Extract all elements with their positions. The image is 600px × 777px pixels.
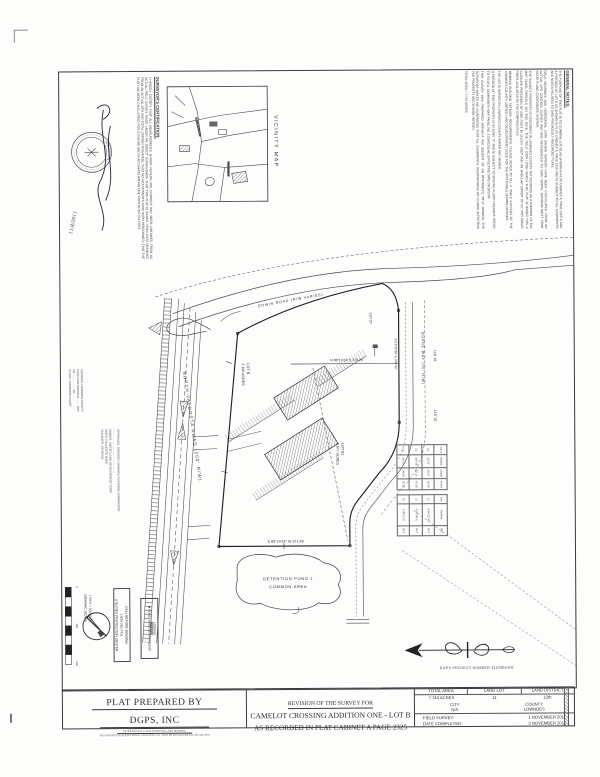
pond-label-line2: COMMON AREA [269, 584, 307, 589]
scan-corner-mark [14, 30, 28, 43]
north-valdosta-road-label: NORTH VALDOSTA ROAD (200' R/W) [182, 371, 203, 482]
legend-box: LEGEND ■ CONC. MONUMENT FOUND [140, 598, 158, 659]
curve-cell: 81.93' [410, 479, 423, 490]
line-cell: N 43°48' E [410, 504, 423, 526]
curve-cell: C2 [409, 445, 422, 455]
title-block: PLAT PREPARED BY DGPS, INC PROFESSIONAL … [62, 686, 575, 729]
city-value: N/A [415, 707, 495, 713]
prepared-by-cell: PLAT PREPARED BY DGPS, INC PROFESSIONAL … [63, 689, 247, 728]
lot-right-label: LOT B1 3.877 ACRES [335, 443, 344, 466]
north-valdosta-road [143, 298, 227, 646]
call-box-line1: CALL BEFORE DIGGING [123, 589, 128, 661]
vicinity-map-label: VICINITY MAP [272, 115, 278, 168]
line-cell: L1 [422, 495, 435, 504]
curve-cell: 82.11' [409, 467, 422, 479]
svg-text:200: 200 [75, 661, 79, 666]
burne-way-label: BURNE WAY (50' R/W) [421, 332, 425, 385]
general-note: THE LOT IS SERVED BY LOWNDES COUNTY WATE… [497, 71, 502, 229]
curve-th: Curve [434, 445, 447, 455]
call-box-line3: UTILITIES PROTECTION CENTER [113, 589, 118, 661]
svg-text:0: 0 [75, 586, 79, 588]
certification-body: I HEREBY CERTIFY THAT ALL MEASUREMENTS S… [135, 77, 153, 259]
general-note: THIS SURVEY WAS PREPARED WITHOUT THE BEN… [471, 71, 485, 229]
curve-cell: 25.00' [422, 455, 435, 467]
lot26-label: LOT 26 [433, 350, 437, 361]
land-lot-header: LAND LOT [468, 688, 521, 694]
certification-heading: SURVEYOR'S CERTIFICATION: [154, 77, 161, 259]
line-cell: 35.2' [397, 526, 410, 536]
title-block-edge-strip [564, 687, 569, 725]
lot-left-label: LOT B 3.180 ACRES [241, 363, 250, 386]
general-note: TOTAL AREA = 7.743 ACRES [464, 71, 469, 229]
svg-text:LOT B: LOT B [246, 363, 250, 374]
info-table-cell: TOTAL AREA LAND LOT LAND DISTRICT 7.743 … [415, 687, 574, 726]
bearing-mid: N 88°14'24" E 370.26' [330, 358, 363, 362]
svg-text:3.877 ACRES: 3.877 ACRES [335, 443, 339, 466]
line-cell: N 46°12' W [422, 504, 435, 526]
curve-cell: 35.36' [422, 479, 435, 490]
owner-approval-note: APPROVED: GREATER LOWNDES PLANNING COMMI… [94, 429, 121, 531]
general-notes: GENERAL NOTES: THE PURPOSE OF THIS PLAT … [400, 70, 571, 229]
prepared-by-title: PLAT PREPARED BY [92, 698, 216, 711]
curve-cell: 38.94' [397, 468, 410, 480]
curve-table: Curve Radius Length Chord C1 25.00' 39.2… [396, 444, 447, 490]
line-cell: L3 [397, 495, 410, 504]
line-cell: 35.2' [422, 526, 435, 536]
bearing-south: S 88°14'24" W 371.46' [268, 539, 305, 543]
line-cell: S 46°12' E [397, 504, 410, 526]
vicinity-map: N. VALDOSTA RD WINDEMERE [167, 86, 268, 202]
line-cell: L2 [410, 495, 423, 504]
curve-cell: 25.00' [397, 455, 410, 467]
curve-th: Chord [435, 479, 448, 490]
curve-cell: 35.12' [397, 479, 410, 490]
lot27-label: LOT 27 [369, 313, 373, 324]
legend-heading: LEGEND [151, 599, 156, 658]
seal-date: 11/4/2011 [68, 210, 79, 234]
total-area-header: TOTAL AREA [415, 688, 468, 694]
no-dig-icon [83, 613, 110, 640]
svg-text:100: 100 [75, 623, 79, 628]
general-note: A PORTION OF THIS PROPERTY IS IN ZONE "X… [486, 71, 495, 229]
date-completed-value: 3 NOVEMBER 2011 [528, 720, 566, 727]
recorded-line: AS RECORDED IN PLAT CABINET A PAGE 2325 [247, 723, 414, 732]
scanned-plat-page: { "document": { "project_number": "DGPS … [0, 0, 600, 777]
prepared-by-address: 3835 KNIGHTS ACADEMY ROAD, VALDOSTA, GA.… [99, 733, 209, 737]
lot25-label: LOT 25 [433, 410, 437, 421]
general-note: THE PURPOSE OF THIS PLAT IS TO COMBINE L… [550, 70, 564, 228]
general-note: THE SUBJECT PROPERTY IS DESCRIBED IN LOW… [515, 71, 533, 229]
legend-item: ■ CONC. MONUMENT FOUND [146, 599, 151, 658]
curve-cell: 39.27' [422, 467, 435, 479]
prepared-by-company: DGPS, INC [100, 716, 210, 729]
line-th: Line [435, 495, 448, 504]
line-cell: 50.0' [410, 526, 423, 536]
survey-title-cell: REVISION OF THE SURVEY FOR CAMELOT CROSS… [247, 688, 415, 727]
surveyors-certification: SURVEYOR'S CERTIFICATION: I HEREBY CERTI… [96, 77, 161, 259]
vicinity-road1-label: N. VALDOSTA RD [194, 117, 201, 137]
svg-text:3.180 ACRES: 3.180 ACRES [241, 363, 245, 386]
pond-label-line1: DETENTION POND 1 [263, 576, 313, 581]
date-completed-label: DATE COMPLETED: [423, 721, 462, 728]
curve-cell: 329.04' [409, 455, 422, 467]
call-box-line2: 1-800-282-7411 [118, 589, 123, 661]
north-arrow [405, 642, 515, 659]
curve-cell: C1 [422, 445, 435, 455]
line-th: Dist [435, 525, 448, 535]
curve-th: Radius [434, 455, 447, 467]
edwin-road [148, 237, 574, 335]
survey-name-line: CAMELOT CROSSING ADDITION ONE - LOT B [247, 710, 414, 720]
revision-line: REVISION OF THE SURVEY FOR [288, 701, 373, 709]
graphic-scale-bar: 0 100 200 [65, 586, 79, 666]
line-table: Line Bearing Dist L1 N 46°12' W 35.2' L2… [397, 494, 448, 536]
bearing-east: S 01°45'36" E 232.02' [394, 338, 398, 369]
general-note: FIELD BEARINGS AND HORIZONTAL DATA SHOWN… [534, 70, 548, 228]
curve-th: Length [434, 467, 447, 479]
svg-text:LOT B1: LOT B1 [340, 443, 344, 456]
line-th: Bearing [435, 504, 448, 526]
general-note: MINIMUM BUILDING SETBACK REQUIREMENTS: P… [504, 71, 513, 229]
plat-sheet: N. VALDOSTA RD WINDEMERE VICINITY MAP GE… [0, 0, 600, 777]
recording-note: GEORGIA, LOWNDES COUNTY FILED FOR RECORD… [64, 369, 84, 431]
general-notes-heading: GENERAL NOTES: [564, 70, 571, 228]
county-value: LOWNDES [494, 706, 574, 712]
vicinity-road2-label: WINDEMERE [227, 161, 230, 176]
curve-cell: C3 [397, 445, 410, 455]
call-before-digging-box: CALL BEFORE DIGGING 1-800-282-7411 UTILI… [113, 588, 130, 662]
scan-edge-tick [10, 714, 12, 723]
